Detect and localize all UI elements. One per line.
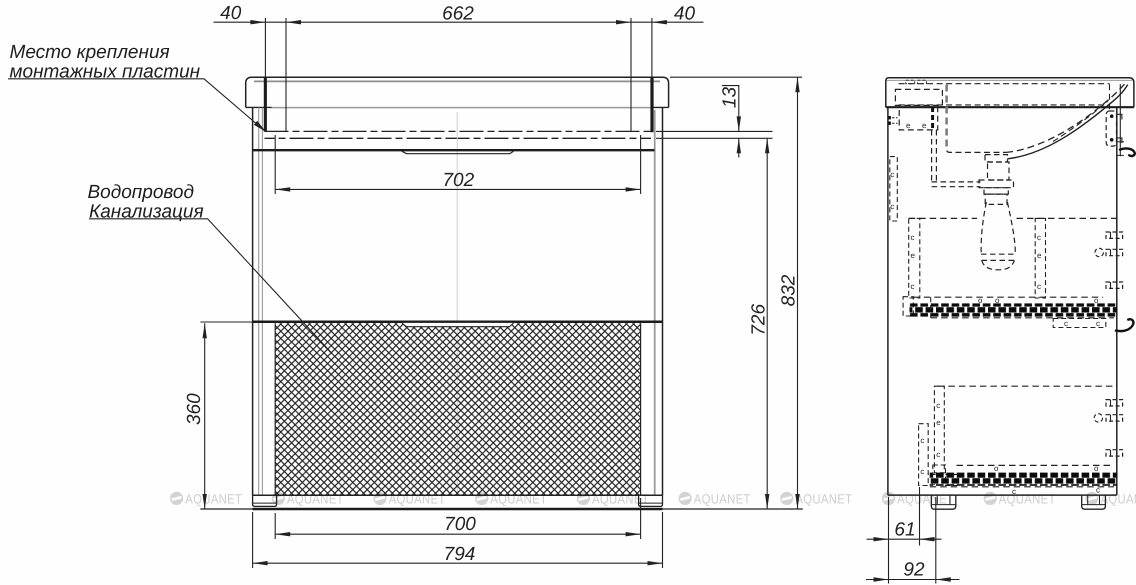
svg-text:360: 360 [184,393,205,425]
svg-text:61: 61 [894,519,915,540]
svg-text:c: c [911,282,915,291]
svg-text:Водопровод: Водопровод [88,182,194,203]
svg-text:c: c [890,170,894,179]
svg-text:e: e [1037,251,1042,260]
svg-text:13: 13 [720,87,741,109]
svg-text:o: o [1094,464,1099,473]
svg-text:AQUANET: AQUANET [897,491,954,506]
svg-text:c: c [1037,282,1041,291]
svg-text:662: 662 [442,4,474,25]
svg-text:702: 702 [442,170,474,191]
svg-text:e: e [911,251,916,260]
svg-text:c: c [1037,233,1041,242]
svg-text:92: 92 [903,559,925,580]
svg-text:c: c [920,436,924,445]
svg-text:726: 726 [748,304,769,336]
svg-text:c: c [911,233,915,242]
svg-text:c: c [1096,486,1100,495]
svg-text:c: c [936,401,940,410]
svg-text:700: 700 [444,514,476,535]
svg-text:c: c [1012,487,1016,496]
svg-text:AQUANET: AQUANET [185,491,242,506]
svg-text:794: 794 [444,544,476,565]
svg-text:c: c [1096,319,1100,328]
svg-text:c: c [890,202,894,211]
svg-text:e: e [906,121,911,130]
svg-text:c: c [932,478,936,487]
svg-text:AQUANET: AQUANET [795,491,852,506]
svg-text:c: c [936,450,940,459]
svg-text:832: 832 [778,274,799,306]
svg-text:c: c [920,467,924,476]
svg-text:c: c [1064,319,1068,328]
svg-text:AQUANET: AQUANET [694,491,751,506]
svg-text:40: 40 [674,3,696,24]
svg-text:e: e [936,418,941,427]
svg-text:Место крепления: Место крепления [10,42,170,63]
svg-text:AQUANET: AQUANET [999,491,1056,506]
svg-text:o: o [994,464,999,473]
svg-text:e: e [922,121,927,130]
svg-text:40: 40 [220,3,242,24]
